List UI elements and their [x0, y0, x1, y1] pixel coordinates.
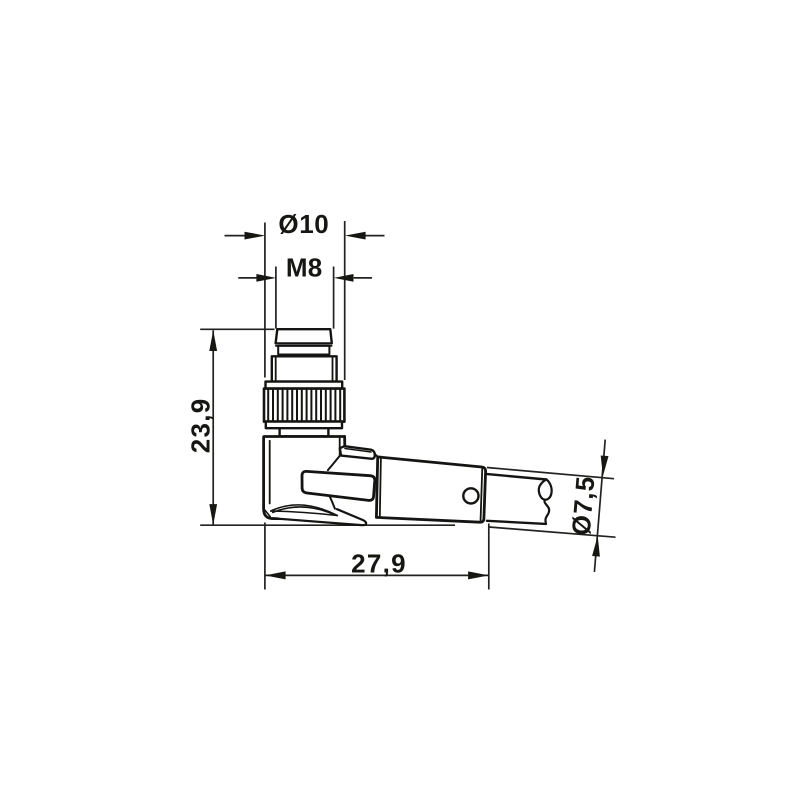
svg-text:Ø7,5: Ø7,5 — [566, 475, 601, 537]
svg-text:27,9: 27,9 — [351, 549, 407, 579]
svg-text:23,9: 23,9 — [186, 397, 216, 453]
svg-text:M8: M8 — [286, 252, 323, 282]
svg-text:Ø10: Ø10 — [278, 209, 329, 239]
